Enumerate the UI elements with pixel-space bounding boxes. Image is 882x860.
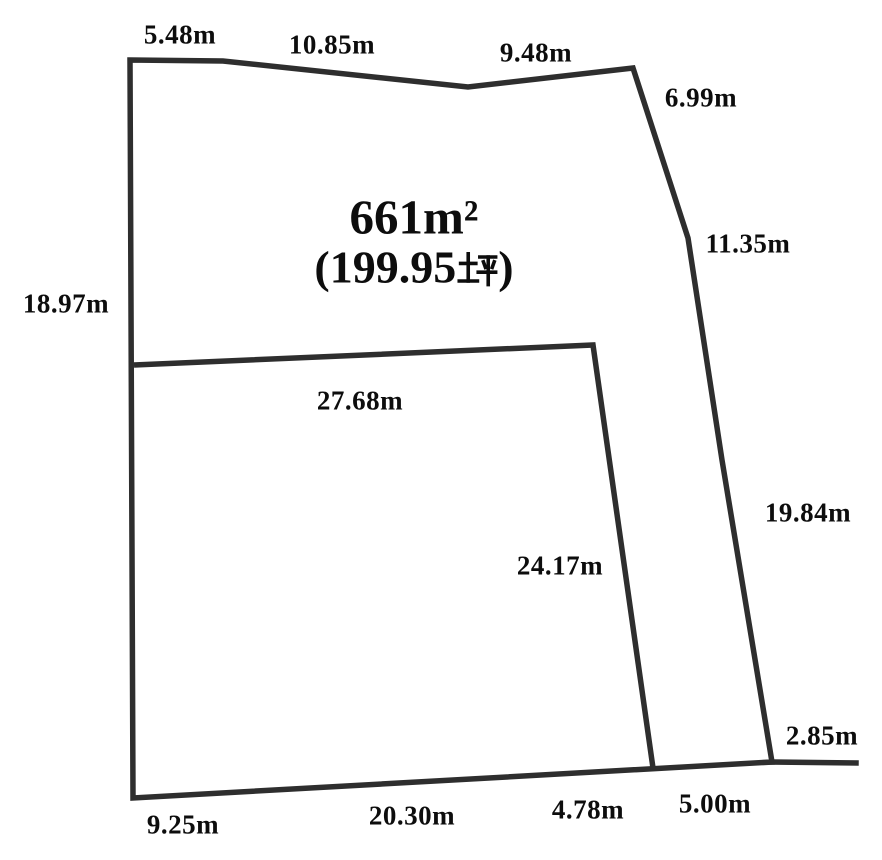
- dimension-label-right-1: 6.99m: [665, 83, 737, 114]
- dimension-label-bottom-1: 9.25m: [147, 810, 219, 841]
- dimension-label-bottom-4: 5.00m: [679, 789, 751, 820]
- area-tsubo: (199.95 坪): [314, 244, 513, 292]
- dimension-label-top-2: 10.85m: [289, 30, 375, 61]
- tsubo-kanji-glyph: [457, 247, 497, 287]
- dimension-label-right-4: 2.85m: [786, 721, 858, 752]
- area-square-meters: 661m²: [314, 193, 513, 244]
- dimension-label-inner-top: 27.68m: [317, 386, 403, 417]
- area-tsubo-open-paren: (: [314, 242, 329, 293]
- dimension-label-bottom-3: 4.78m: [552, 795, 624, 826]
- area-tsubo-value: 199.95: [330, 242, 457, 293]
- frontage-extension-line: [772, 762, 856, 763]
- dimension-label-right-3: 19.84m: [765, 498, 851, 529]
- area-tsubo-close-paren: ): [498, 242, 513, 293]
- plot-boundary-canvas: [0, 0, 882, 860]
- area-annotation: 661m² (199.95 坪): [314, 193, 513, 292]
- dimension-label-top-1: 5.48m: [144, 20, 216, 51]
- dimension-label-left: 18.97m: [23, 289, 109, 320]
- dimension-label-inner-right: 24.17m: [517, 551, 603, 582]
- dimension-label-right-2: 11.35m: [706, 229, 791, 260]
- land-plot-diagram: 5.48m 10.85m 9.48m 6.99m 11.35m 19.84m 2…: [0, 0, 882, 860]
- dimension-label-bottom-2: 20.30m: [369, 801, 455, 832]
- dimension-label-top-3: 9.48m: [500, 38, 572, 69]
- outer-boundary-line: [130, 60, 772, 798]
